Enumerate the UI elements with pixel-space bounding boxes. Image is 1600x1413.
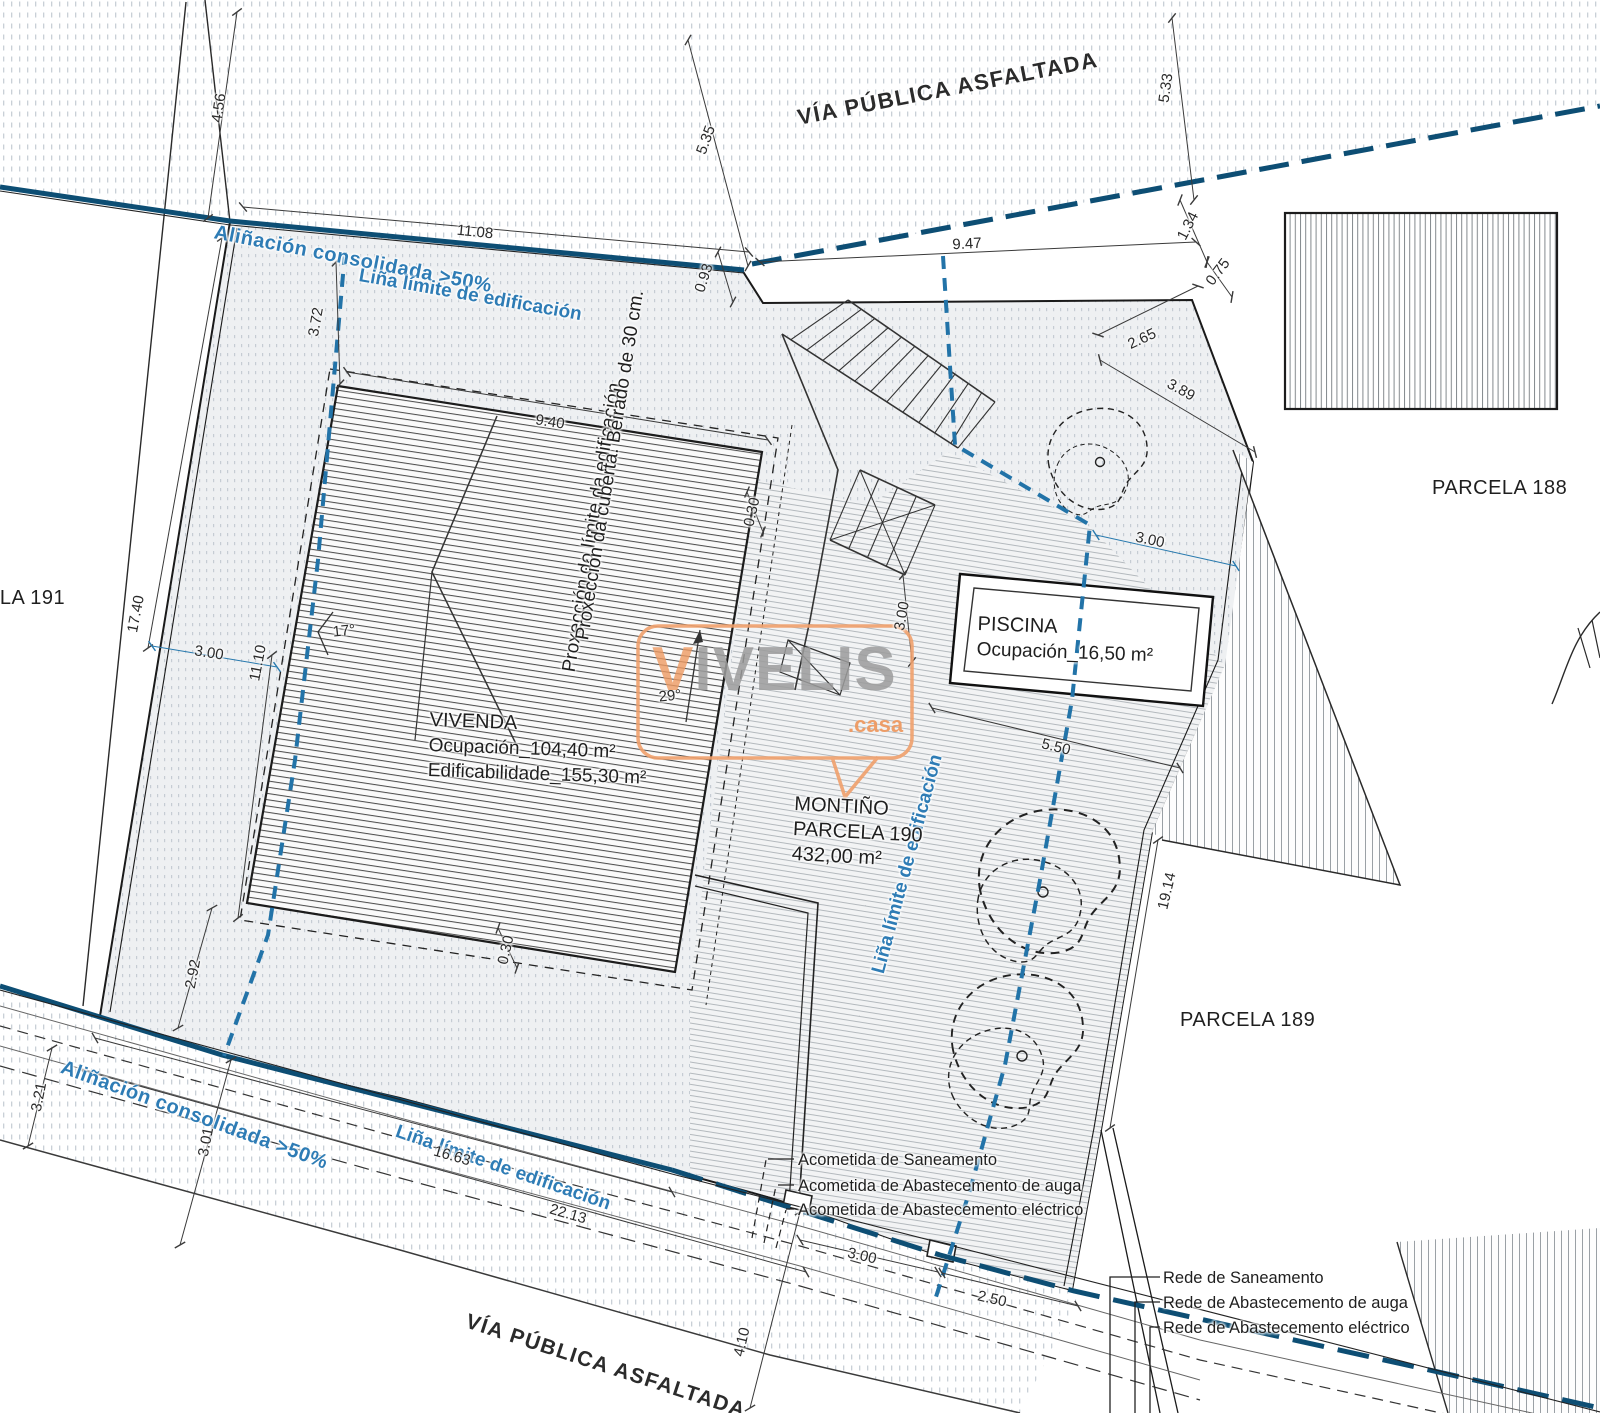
vivelis-logo-suffix: .casa — [848, 712, 903, 738]
acometida-auga-label: Acometida de Abastecemento de auga — [798, 1176, 1081, 1197]
dimension-line — [1254, 446, 1257, 458]
site-plan: VÍA PÚBLICA ASFALTADA VÍA PÚBLICA ASFALT… — [0, 0, 1600, 1413]
rede-saneamento-label: Rede de Saneamento — [1163, 1268, 1324, 1289]
vivelis-logo: VIVELIS — [652, 634, 897, 705]
dimension-line — [1192, 284, 1203, 288]
acometida-saneamento-label: Acometida de Saneamento — [798, 1150, 997, 1171]
dimension-label: 9.47 — [952, 235, 982, 254]
dimension-label: 11.08 — [456, 222, 494, 243]
piscina-label: PISCINA Ocupación_16,50 m² — [976, 612, 1154, 668]
acometida-electrico-label: Acometida de Abastecemento eléctrico — [798, 1200, 1083, 1221]
dimension-label: 17° — [332, 621, 356, 640]
parcela-191-label: ELA 191 — [0, 586, 65, 611]
rede-electrico-label: Rede de Abastecemento eléctrico — [1163, 1318, 1410, 1339]
dimension-line — [1206, 256, 1208, 268]
rede-auga-label: Rede de Abastecemento de auga — [1163, 1293, 1408, 1314]
parcela-190-label: MONTIÑO PARCELA 190 432,00 m² — [791, 792, 924, 874]
parcela-189-label: PARCELA 189 — [1180, 1008, 1315, 1033]
dimension-line — [175, 1242, 185, 1248]
dimension-line — [1231, 291, 1233, 303]
parcela-188-label: PARCELA 188 — [1432, 476, 1567, 501]
vivenda-label: VIVENDA Ocupación_104,40 m² Edificabilid… — [427, 708, 648, 791]
vivelis-logo-v: V — [652, 635, 694, 704]
vivelis-logo-rest: IVELIS — [694, 635, 896, 704]
